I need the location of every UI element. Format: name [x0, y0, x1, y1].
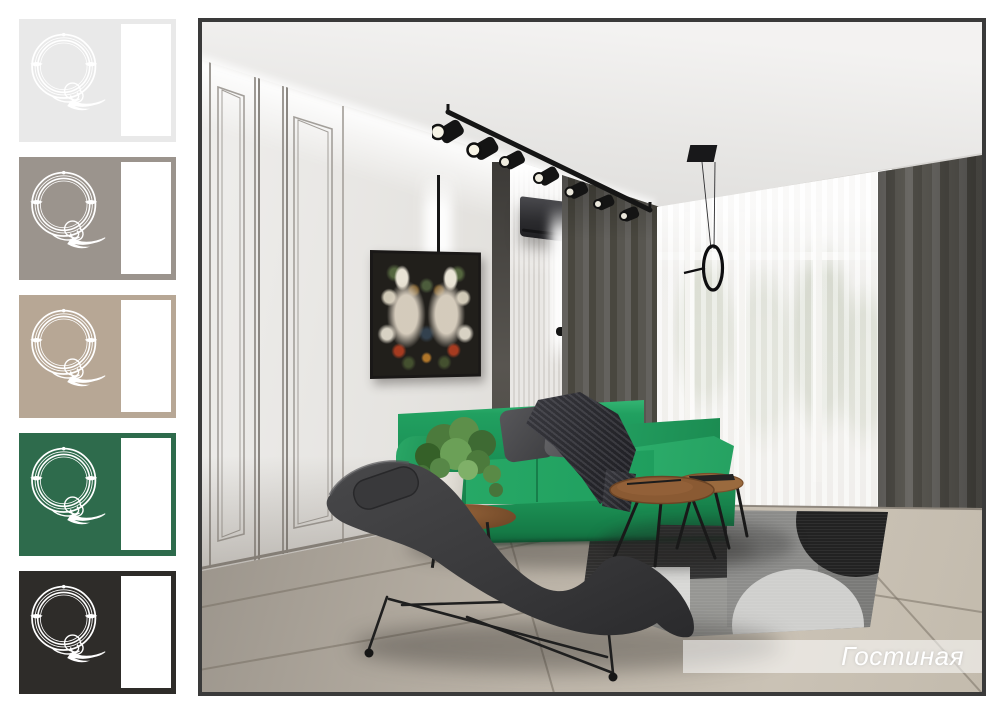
- material-chip: [121, 24, 171, 136]
- swatch-green: [19, 433, 176, 556]
- material-chip: [121, 576, 171, 688]
- material-chip: [121, 162, 171, 274]
- artwork-print: [373, 253, 478, 376]
- swatch-charcoal: [19, 571, 176, 694]
- swatch-column: [19, 19, 176, 694]
- material-chip: [121, 438, 171, 550]
- render-frame: Гостиная: [198, 18, 986, 696]
- design-board: Гостиная: [0, 0, 990, 714]
- swatch-warm-gray: [19, 157, 176, 280]
- swatch-beige: [19, 295, 176, 418]
- pendant-ring-light: [672, 137, 752, 312]
- caption-label: Гостиная: [841, 641, 964, 672]
- track-light: [432, 92, 667, 227]
- q-ornament-logo-icon: [25, 25, 113, 113]
- curtain-panel-right: [878, 150, 982, 514]
- q-ornament-logo-icon: [25, 301, 113, 389]
- living-room-render: Гостиная: [202, 22, 982, 692]
- room-caption: Гостиная: [683, 640, 982, 673]
- q-ornament-logo-icon: [25, 163, 113, 251]
- swatch-light-gray: [19, 19, 176, 142]
- q-ornament-logo-icon: [25, 577, 113, 665]
- material-chip: [121, 300, 171, 412]
- artwork-frame: [370, 250, 481, 379]
- chaise-lounge: [317, 447, 717, 692]
- q-ornament-logo-icon: [25, 439, 113, 527]
